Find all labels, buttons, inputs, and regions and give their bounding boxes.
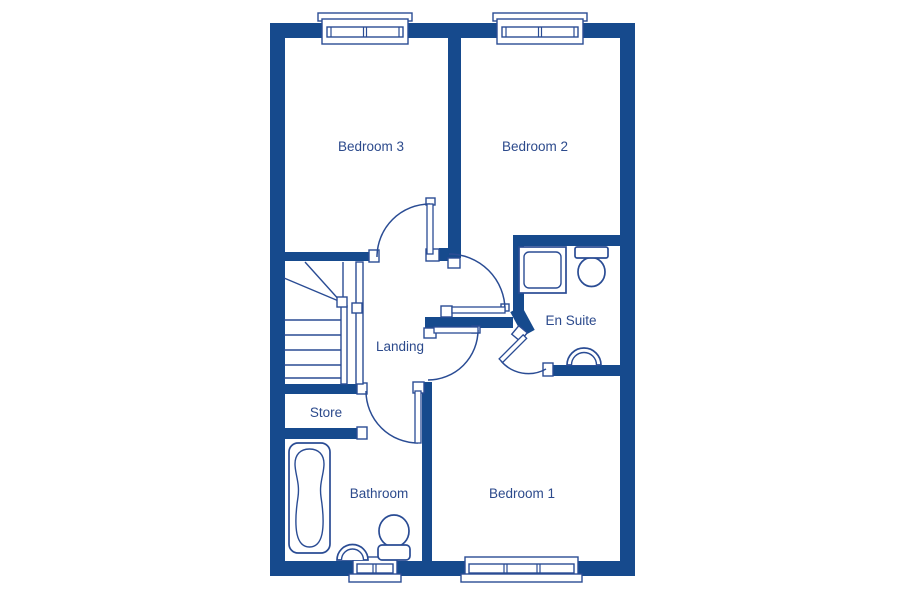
stair-handrail	[341, 306, 347, 384]
stair-newel-post	[337, 297, 347, 307]
stair-winder	[305, 262, 341, 302]
toilet-cistern	[378, 545, 410, 560]
bath-tub-inner	[295, 449, 324, 547]
door-swing-arc	[366, 391, 418, 443]
room-label-landing: Landing	[376, 339, 424, 354]
bedroom3-window	[318, 13, 412, 44]
door-leaf	[415, 391, 421, 443]
wall-store-bottom	[284, 428, 358, 439]
ensuite-fixtures	[519, 247, 608, 365]
stair-balustrade	[356, 262, 363, 384]
window-glazing	[469, 564, 574, 573]
window-glazing	[502, 27, 578, 37]
door-leaf	[499, 335, 527, 363]
room-label-bathroom: Bathroom	[350, 486, 409, 501]
bedroom3-door	[377, 204, 433, 257]
stair-winder	[284, 278, 341, 302]
wall-store-top	[284, 384, 358, 394]
wall-bedroom3-bottom	[284, 252, 371, 261]
shower-tray-inner	[524, 252, 561, 288]
bedroom2-window	[493, 13, 587, 44]
room-label-store: Store	[310, 405, 342, 420]
window-sill	[461, 574, 582, 582]
window-glazing	[357, 564, 393, 573]
toilet-icon	[578, 258, 605, 287]
stair-newel-post	[352, 303, 362, 313]
door-swing-arc	[501, 361, 546, 374]
bathroom-door	[366, 391, 421, 443]
door-leaf	[452, 307, 505, 313]
staircase-icon	[284, 262, 363, 384]
window-sill	[349, 574, 401, 582]
toilet-cistern	[575, 247, 608, 258]
room-label-bedroom1: Bedroom 1	[489, 486, 555, 501]
bedroom1-window	[461, 557, 582, 582]
floorplan-drawing: Bedroom 3 Bedroom 2 En Suite Landing Sto…	[0, 0, 900, 600]
jamb	[448, 258, 460, 268]
bathroom-fixtures	[289, 443, 410, 560]
floorplan-canvas: Bedroom 3 Bedroom 2 En Suite Landing Sto…	[0, 0, 900, 600]
door-swing-arc	[377, 204, 430, 257]
wall-ensuite-bottom	[546, 365, 620, 376]
jamb	[441, 306, 452, 317]
wall-bedroom2-bedroom3	[448, 38, 461, 258]
toilet-icon	[379, 515, 409, 547]
wall-ensuite-top	[513, 235, 620, 246]
jamb	[357, 427, 367, 439]
outer-wall-right	[620, 23, 635, 576]
wall-bathroom-bedroom1	[422, 382, 432, 561]
room-label-bedroom3: Bedroom 3	[338, 139, 404, 154]
ensuite-door	[499, 335, 546, 374]
window-glazing	[327, 27, 403, 37]
outer-wall-left	[270, 23, 285, 576]
room-label-bedroom2: Bedroom 2	[502, 139, 568, 154]
door-leaf	[427, 204, 433, 254]
door-leaf	[434, 327, 478, 333]
room-label-ensuite: En Suite	[545, 313, 596, 328]
